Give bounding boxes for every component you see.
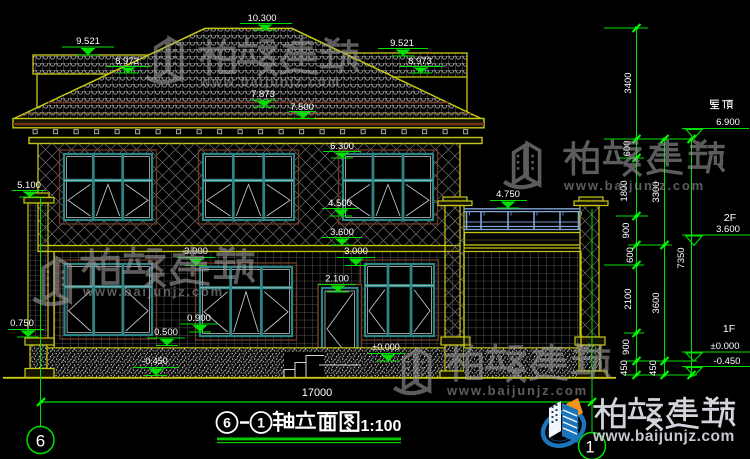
svg-text:0.500: 0.500	[154, 327, 178, 338]
svg-text:3400: 3400	[623, 72, 634, 93]
svg-text:9.521: 9.521	[390, 38, 414, 49]
svg-text:600: 600	[625, 247, 636, 263]
svg-text:-0.450: -0.450	[714, 356, 741, 367]
svg-text:www.baijunjz.com: www.baijunjz.com	[446, 383, 588, 398]
svg-text:6: 6	[36, 432, 45, 451]
svg-text:1:100: 1:100	[361, 418, 402, 435]
svg-text:3.600: 3.600	[330, 227, 354, 238]
svg-text:900: 900	[621, 223, 632, 239]
svg-text:4.750: 4.750	[496, 189, 520, 200]
svg-text:450: 450	[648, 360, 659, 376]
svg-text:3.600: 3.600	[716, 224, 740, 235]
svg-text:10.300: 10.300	[247, 13, 276, 24]
svg-text:www.baijunjz.com: www.baijunjz.com	[592, 428, 735, 445]
svg-text:0.750: 0.750	[10, 318, 34, 329]
svg-text:7350: 7350	[676, 247, 687, 268]
svg-text:1F: 1F	[723, 323, 735, 335]
svg-text:www.baijunjz.com: www.baijunjz.com	[199, 74, 341, 89]
svg-text:6.300: 6.300	[330, 141, 354, 152]
svg-text:6.900: 6.900	[716, 117, 740, 128]
svg-text:1: 1	[257, 415, 265, 431]
svg-text:±0.000: ±0.000	[372, 342, 399, 352]
svg-text:3600: 3600	[651, 292, 662, 313]
svg-text:www.baijunjz.com: www.baijunjz.com	[563, 178, 705, 193]
svg-text:4.500: 4.500	[328, 198, 352, 209]
svg-text:0.900: 0.900	[187, 313, 211, 324]
svg-text:±0.000: ±0.000	[711, 341, 740, 352]
svg-text:-0.450: -0.450	[142, 356, 168, 366]
svg-text:8.973: 8.973	[408, 56, 432, 67]
svg-text:8.973: 8.973	[115, 56, 139, 67]
svg-text:17000: 17000	[302, 387, 333, 399]
svg-text:9.521: 9.521	[76, 36, 100, 47]
svg-text:2100: 2100	[623, 288, 634, 309]
svg-text:450: 450	[619, 360, 630, 376]
svg-text:3.000: 3.000	[344, 246, 368, 257]
svg-text:2F: 2F	[724, 212, 736, 224]
svg-text:900: 900	[621, 339, 632, 355]
svg-text:5.100: 5.100	[17, 180, 41, 191]
svg-text:2.100: 2.100	[325, 274, 349, 285]
svg-text:www.baijunjz.com: www.baijunjz.com	[82, 284, 224, 299]
svg-text:7.873: 7.873	[251, 89, 275, 100]
svg-text:6: 6	[223, 415, 231, 431]
